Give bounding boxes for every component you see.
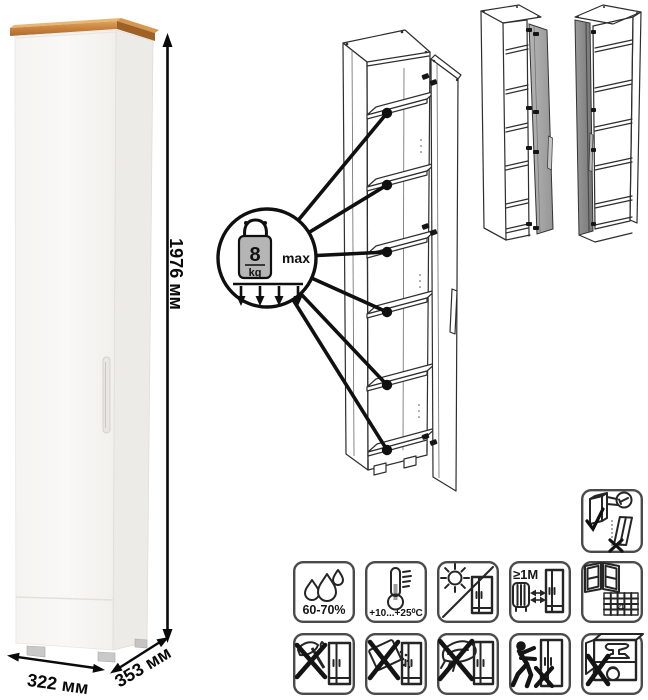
no-sharp-tools-icon — [294, 634, 354, 694]
variant-right-hinged — [481, 5, 553, 240]
foot — [135, 639, 147, 648]
weight-max-label: max — [282, 250, 310, 266]
no-pushing-icon — [510, 634, 570, 694]
humidity-icon: 60-70% — [294, 562, 354, 622]
calendar-day: 21 — [618, 605, 624, 611]
open-window-icon — [585, 563, 619, 592]
width-label: 322 мм — [26, 670, 90, 698]
variant-shelves — [595, 40, 632, 229]
variant-left-hinged — [575, 5, 641, 242]
foot — [98, 652, 115, 662]
distance-label: ≥1М — [513, 567, 538, 582]
cabinet-side — [113, 30, 153, 650]
no-heavy-items-icon — [582, 634, 643, 694]
open-door — [431, 55, 461, 491]
width-arrow — [17, 657, 95, 668]
product-photo — [10, 18, 159, 662]
weight-value: 8 — [249, 244, 260, 266]
variant-shelves — [506, 45, 528, 233]
shelves — [367, 91, 436, 456]
heater-distance-icon: ≥1М — [510, 562, 570, 622]
height-label: 1976 мм — [166, 238, 186, 310]
door-handle-groove — [103, 357, 110, 433]
left-panel — [343, 43, 368, 470]
no-chemical-spill-icon — [366, 634, 426, 694]
weight-unit: kg — [249, 267, 262, 279]
temperature-icon: +10...+25⁰C — [366, 562, 426, 622]
foot — [27, 646, 45, 657]
door-handle — [589, 133, 593, 172]
gray-door-right — [529, 24, 553, 234]
no-wet-abrasive-cleaning-icon — [438, 634, 498, 694]
humidity-label: 60-70% — [302, 603, 345, 617]
ventilation-icon: 21 — [582, 562, 642, 622]
no-direct-sunlight-icon — [438, 562, 498, 622]
temperature-label: +10...+25⁰C — [369, 608, 423, 619]
gray-door-left — [575, 20, 593, 235]
door-handle — [548, 136, 553, 170]
cabinet-front — [15, 30, 116, 650]
sheet-graphic: 1976 мм 322 мм 353 мм — [0, 0, 648, 700]
load-weight-icon: 8 kg max — [218, 209, 316, 307]
furniture-product-sheet: 1976 мм 322 мм 353 мм — [0, 0, 648, 700]
open-cabinet-diagram: 8 kg max — [218, 30, 461, 491]
anchor-to-wall-icon — [582, 490, 642, 552]
